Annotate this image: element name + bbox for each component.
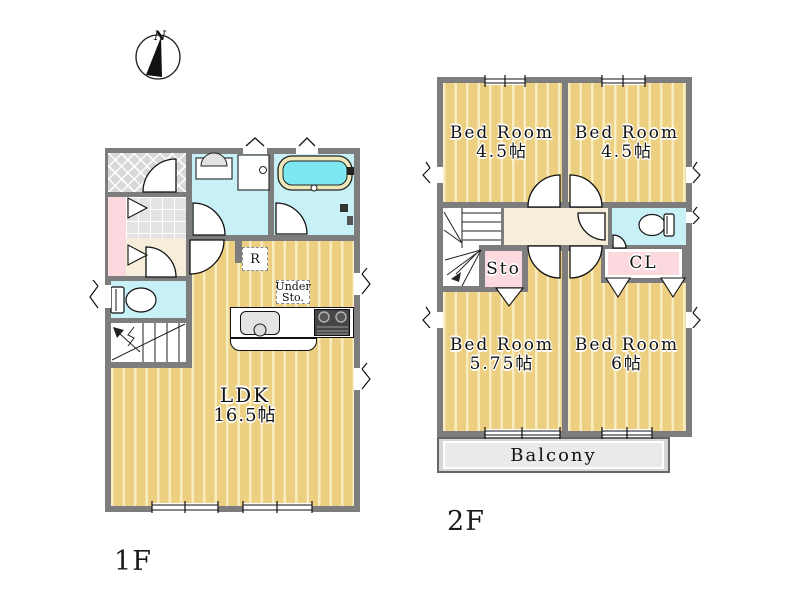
storage-2f: Sto [485, 251, 522, 287]
closet-entrance-upper [108, 197, 127, 238]
floor1-title: 1F [103, 546, 163, 577]
window-chevron-right-2f-upper [693, 162, 700, 183]
room-bathroom [274, 154, 354, 235]
storage-label: Sto [486, 260, 521, 279]
stairs-2f-lower [443, 248, 483, 286]
bedroom-br-label-line1: Bed Room [567, 336, 687, 355]
window-chevron-left-2f-upper [423, 162, 430, 183]
room-genkan-tile [126, 197, 186, 239]
vent-chevron-icon-1 [246, 138, 264, 146]
window-chevron-right-1f-lower [362, 363, 370, 389]
bedroom-bl-label-line2: 5.75帖 [442, 355, 562, 374]
wall-stub-kitchen [235, 241, 242, 263]
window-chevron-toilet-2f [693, 207, 699, 224]
room-entrance-porch [108, 153, 186, 192]
balcony-label: Balcony [510, 445, 596, 466]
stairs-1f [111, 323, 186, 362]
room-hallway-2f [504, 208, 608, 245]
refrigerator-label: R [250, 254, 260, 265]
bedroom-tl-label-line2: 4.5帖 [442, 143, 562, 162]
kitchen-counter-overhang [230, 338, 317, 351]
closet-2f: CL [608, 252, 679, 275]
room-toilet-2f [612, 208, 686, 245]
ldk-label-line2: 16.5帖 [184, 406, 306, 426]
room-washroom [192, 154, 268, 235]
bedroom-bl-label-line1: Bed Room [442, 336, 562, 355]
balcony-inner: Balcony [443, 441, 664, 469]
floor2-title: 2F [436, 506, 496, 537]
bedroom-tr-label-line2: 4.5帖 [567, 143, 687, 162]
under-storage-label-line2: Sto. [282, 292, 304, 303]
bedroom-tr-label-line1: Bed Room [567, 124, 687, 143]
window-chevron-right-1f-upper [362, 268, 370, 294]
vent-chevron-icon-2 [299, 138, 315, 146]
floorplan-canvas: R Under Sto. LDK 16.5帖 1F Sto CL Balcony… [0, 0, 800, 600]
compass-north-label: N [153, 29, 167, 44]
closet-entrance-lower [108, 238, 127, 276]
refrigerator-space: R [242, 247, 268, 271]
room-toilet-1f [111, 281, 186, 318]
window-chevron-right-2f-lower [693, 307, 700, 328]
ldk-label-line1: LDK [184, 385, 306, 406]
room-hallway-1f [126, 238, 186, 276]
kitchen-sink [240, 311, 280, 335]
window-chevron-left-2f-lower [423, 307, 430, 328]
compass-icon: N [136, 29, 180, 79]
under-stairs-storage: Under Sto. [276, 280, 310, 304]
closet-label: CL [629, 254, 657, 273]
kitchen-stove [314, 309, 350, 336]
bedroom-tl-label-line1: Bed Room [442, 124, 562, 143]
bedroom-br-label-line2: 6帖 [567, 355, 687, 374]
stairs-2f-upper [443, 208, 501, 248]
window-chevron-left-1f [90, 280, 98, 308]
